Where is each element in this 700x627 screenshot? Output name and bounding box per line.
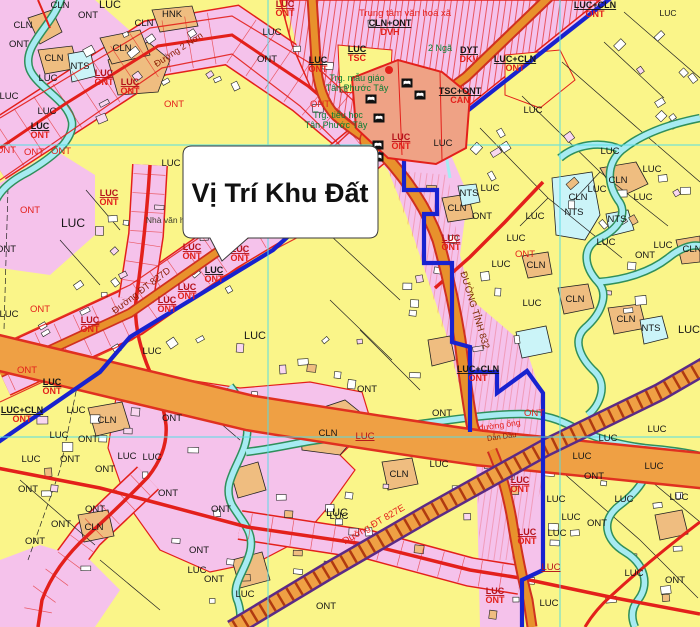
landuse-code-label: LUC <box>561 512 580 523</box>
building-footprint <box>236 343 244 352</box>
landuse-code-label: ONT <box>316 601 336 612</box>
landuse-pair-label: ONT <box>442 242 462 252</box>
landuse-pair-label: ONT <box>158 304 178 314</box>
building-footprint <box>123 220 129 225</box>
landuse-code-label: LUC <box>0 309 19 320</box>
landuse-code-label: LUC <box>142 452 161 463</box>
landuse-code-label: LUC <box>429 459 448 470</box>
landuse-code-label: LUC <box>142 346 161 357</box>
building-footprint <box>154 205 164 210</box>
landuse-code-label: CLN <box>682 244 700 255</box>
building-footprint <box>276 494 286 500</box>
building-footprint <box>81 566 91 571</box>
landuse-pair-label: ONT <box>518 536 538 546</box>
landuse-code-label: ONT <box>95 464 115 475</box>
landuse-code-label: CLN <box>389 469 408 480</box>
building-footprint <box>383 484 389 488</box>
building-footprint <box>623 308 633 314</box>
building-footprint <box>99 435 107 442</box>
landuse-pair-label: ONT <box>506 63 526 73</box>
landuse-code-label: ONT <box>472 211 492 222</box>
building-footprint <box>345 492 353 499</box>
landuse-code-label: LUC <box>38 73 57 84</box>
building-footprint <box>62 443 73 452</box>
landuse-code-label: ONT <box>24 147 44 158</box>
landuse-code-label: LUC <box>491 259 510 270</box>
landuse-pair-label: ONT <box>13 414 33 424</box>
landuse-pair-label: ONT <box>121 86 141 96</box>
landuse-code-label: ONT <box>257 54 277 65</box>
landuse-code-label: LUC <box>525 211 544 222</box>
building-footprint <box>347 379 356 389</box>
landuse-code-label: ONT <box>30 304 50 315</box>
landuse-code-label: CLN <box>608 175 627 186</box>
landuse-code-label: LUC <box>49 430 68 441</box>
landuse-code-label: CLN <box>13 20 32 31</box>
landuse-code-label: LUC <box>433 138 452 149</box>
school-icon <box>415 91 426 100</box>
landuse-pair-label: ONT <box>511 484 531 494</box>
school-icon <box>374 114 385 123</box>
landuse-code-label: LUC <box>541 562 560 573</box>
landuse-code-label: LUC <box>647 424 666 435</box>
landuse-pair-label: ONT <box>183 251 203 261</box>
landuse-pair-label: ONT <box>309 64 329 74</box>
landuse-pair-label: ONT <box>392 141 412 151</box>
place-name-label: Tân Phước Tây <box>305 120 368 130</box>
landuse-code-label: LUC <box>653 240 672 251</box>
building-footprint <box>570 530 579 536</box>
place-name-label: Trg. tiểu học <box>313 110 363 120</box>
building-footprint <box>513 597 519 602</box>
landuse-code-label: LUC <box>546 494 565 505</box>
landuse-code-label: ONT <box>162 413 182 424</box>
landuse-code-label: LUC <box>572 451 591 462</box>
landuse-code-label: ONT <box>17 365 37 376</box>
place-name-label: Trung tâm văn hoá xã <box>359 8 452 19</box>
poi-dot <box>385 66 393 74</box>
landuse-code-label: LUC <box>596 237 615 248</box>
landuse-pair-label: ONT <box>276 8 296 18</box>
landuse-code-label: LUC <box>659 8 676 18</box>
building-footprint <box>680 187 690 194</box>
landuse-pair-label: ONT <box>178 291 198 301</box>
zoning-map[interactable]: LUCCLNONTCLNONTCLNHNKCLNCLNNTSLUCLUCLUCO… <box>0 0 700 627</box>
school-icon <box>366 95 377 104</box>
building-footprint <box>293 569 302 575</box>
landuse-code-label: CLN <box>318 428 337 439</box>
landuse-code-label: LUC <box>480 183 499 194</box>
building-footprint <box>489 610 497 619</box>
landuse-pair-label: ONT <box>43 386 63 396</box>
landuse-code-label: CLN <box>134 18 153 29</box>
building-footprint <box>279 365 286 374</box>
landuse-code-label: ONT <box>635 250 655 261</box>
building-footprint <box>298 359 309 366</box>
landuse-code-label: CLN <box>97 415 116 426</box>
landuse-code-label: LUC <box>37 106 56 117</box>
landuse-pair-label: DVH <box>380 27 399 37</box>
landuse-code-label: LUC <box>355 431 374 442</box>
landuse-code-label: LUC <box>117 451 136 462</box>
landuse-code-label: LUC <box>644 461 663 472</box>
landuse-code-label: LUC <box>506 233 525 244</box>
building-footprint <box>293 550 302 556</box>
school-icon <box>402 79 413 88</box>
building-footprint <box>635 295 647 305</box>
landuse-code-label: ONT <box>587 518 607 529</box>
building-footprint <box>209 599 215 604</box>
landuse-code-label: ONT <box>51 146 71 157</box>
building-footprint <box>653 502 663 508</box>
landuse-code-label: LUC <box>61 216 85 230</box>
building-footprint <box>660 585 671 594</box>
building-footprint <box>293 46 301 51</box>
landuse-code-label: LUC <box>522 298 541 309</box>
landuse-code-label: LUC <box>547 528 566 539</box>
building-footprint <box>44 468 52 477</box>
landuse-code-label: LUC <box>678 324 700 336</box>
building-footprint <box>480 271 490 281</box>
landuse-code-label: LUC <box>66 405 85 416</box>
landuse-code-label: NTS <box>71 61 90 72</box>
landuse-code-label: LUC <box>0 91 19 102</box>
landuse-code-label: ONT <box>20 205 40 216</box>
landuse-code-label: LUC <box>600 146 619 157</box>
building-footprint <box>37 416 48 424</box>
landuse-code-label: NTS <box>608 214 627 225</box>
building-footprint <box>284 511 293 518</box>
landuse-pair-label: CAN <box>450 95 470 105</box>
landuse-code-label: CLN <box>112 43 131 54</box>
landuse-code-label: ONT <box>665 575 685 586</box>
landuse-code-label: ONT <box>524 408 544 419</box>
zoning-map-viewport[interactable]: LUCCLNONTCLNONTCLNHNKCLNCLNNTSLUCLUCLUCO… <box>0 0 700 627</box>
landuse-code-label: LUC <box>21 454 40 465</box>
landuse-code-label: ONT <box>85 504 105 515</box>
landuse-code-label: ONT <box>432 408 452 419</box>
landuse-pair-label: ONT <box>95 77 115 87</box>
landuse-code-label: ONT <box>584 471 604 482</box>
building-footprint <box>307 364 317 372</box>
landuse-code-label: ONT <box>51 519 71 530</box>
building-footprint <box>95 226 103 235</box>
landuse-code-label: CLN <box>616 314 635 325</box>
building-footprint <box>410 373 421 378</box>
building-footprint <box>415 275 423 283</box>
landuse-code-label: LUC <box>539 598 558 609</box>
building-footprint <box>673 546 682 551</box>
landuse-code-label: LUC <box>669 492 688 503</box>
landuse-pair-label: ONT <box>586 9 606 19</box>
building-footprint <box>403 283 412 290</box>
building-footprint <box>658 175 667 183</box>
building-footprint <box>188 447 199 453</box>
landuse-code-label: ONT <box>310 99 330 110</box>
landuse-code-label: ONT <box>515 249 535 260</box>
landuse-code-label: LUC <box>523 105 542 116</box>
landuse-code-label: ONT <box>158 488 178 499</box>
place-name-label: 2 Ngã <box>428 43 452 53</box>
landuse-code-label: ONT <box>78 10 98 21</box>
landuse-pair-label: DKV <box>459 54 478 64</box>
landuse-pair-label: ONT <box>205 274 225 284</box>
landuse-code-label: NTS <box>642 323 661 334</box>
landuse-code-label: LUC <box>624 568 643 579</box>
landuse-code-label: NTS <box>460 188 479 199</box>
building-footprint <box>662 594 670 601</box>
landuse-code-label: LUC <box>262 27 281 38</box>
landuse-code-label: ONT <box>189 545 209 556</box>
building-footprint <box>124 428 132 434</box>
landuse-code-label: LUC <box>244 330 266 342</box>
landuse-code-label: ONT <box>211 504 231 515</box>
landuse-code-label: LUC <box>642 164 661 175</box>
landuse-pair-label: ONT <box>81 324 101 334</box>
building-footprint <box>42 491 52 496</box>
landuse-code-label: LUC <box>99 0 121 11</box>
building-footprint <box>226 559 234 565</box>
landuse-code-label: ONT <box>164 99 184 110</box>
landuse-code-label: CLN <box>565 294 584 305</box>
landuse-code-label: ONT <box>357 384 377 395</box>
building-footprint <box>514 335 520 344</box>
building-footprint <box>334 371 341 378</box>
landuse-code-label: LUC <box>614 494 633 505</box>
building-footprint <box>172 538 181 543</box>
landuse-code-label: ONT <box>9 39 29 50</box>
building-footprint <box>495 288 501 296</box>
landuse-pair-label: ONT <box>100 197 120 207</box>
building-footprint <box>357 339 363 344</box>
landuse-pair-label: ONT <box>31 130 51 140</box>
landuse-code-label: CLN <box>50 0 69 11</box>
building-footprint <box>550 540 560 546</box>
landuse-code-label: ONT <box>18 484 38 495</box>
landuse-code-label: CLN <box>84 522 103 533</box>
landuse-code-label: LUC <box>161 158 180 169</box>
building-footprint <box>131 408 140 417</box>
landuse-code-label: ONT <box>0 145 16 156</box>
landuse-code-label: LUC <box>235 589 254 600</box>
building-footprint <box>409 310 417 316</box>
landuse-code-label: ONT <box>25 536 45 547</box>
landuse-code-label: CLN <box>526 260 545 271</box>
landuse-pair-label: ONT <box>231 253 251 263</box>
landuse-pair-label: ONT <box>469 373 489 383</box>
place-name-label: Trg. mẫu giáo <box>329 73 384 83</box>
landuse-code-label: ONT <box>204 574 224 585</box>
place-name-label: Tân Phước Tây <box>326 83 389 93</box>
building-footprint <box>108 215 117 222</box>
callout-text: Vị Trí Khu Đất <box>191 178 368 208</box>
building-footprint <box>464 513 471 520</box>
landuse-code-label: ONT <box>78 434 98 445</box>
landuse-code-label: LUC <box>598 433 617 444</box>
landuse-code-label: ONT <box>60 454 80 465</box>
landuse-pair-label: ONT <box>486 595 506 605</box>
landuse-code-label: NTS <box>565 207 584 218</box>
landuse-code-label: CLN <box>568 192 587 203</box>
landuse-code-label: CLN <box>447 203 466 214</box>
landuse-code-label: LUC <box>633 192 652 203</box>
landuse-code-label: LUC <box>587 184 606 195</box>
building-footprint <box>627 262 636 270</box>
landuse-code-label: CLN <box>44 53 63 64</box>
building-footprint <box>50 485 58 492</box>
landuse-code-label: HNK <box>162 9 183 20</box>
landuse-code-label: LUC <box>329 511 348 522</box>
landuse-code-label: ONT <box>0 244 16 255</box>
building-footprint <box>410 300 418 308</box>
landuse-pair-label: TSC <box>348 53 367 63</box>
